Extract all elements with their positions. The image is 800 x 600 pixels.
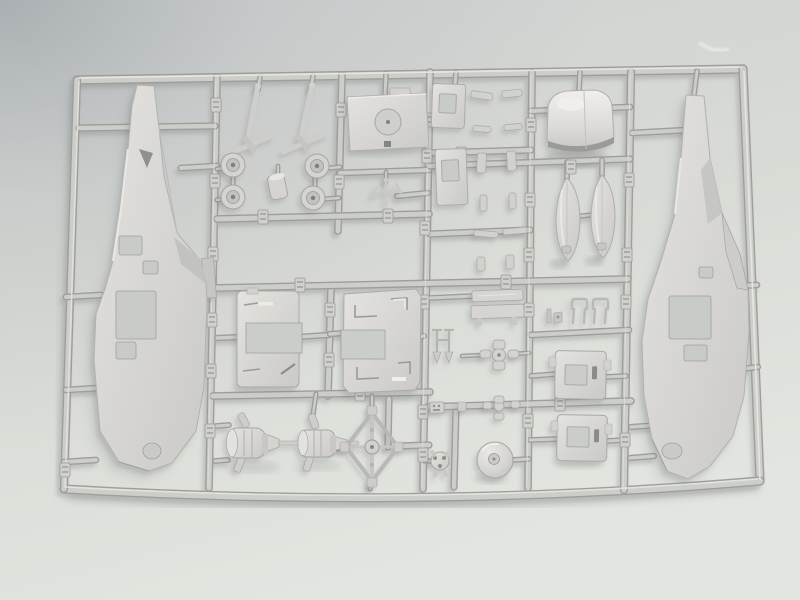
ball-joint-hole-2 xyxy=(442,456,446,460)
stub-top-canopy xyxy=(579,72,580,92)
part-number-tab xyxy=(334,175,344,189)
part-number-tab xyxy=(422,149,432,163)
part-number-tab xyxy=(566,160,576,174)
detail-bit-4 xyxy=(504,123,522,130)
gearbox-1-end-cap xyxy=(227,429,238,457)
fuselage-left-window-opening-1 xyxy=(119,236,142,255)
seat-rail-leg-2 xyxy=(512,317,517,325)
misc-box-part xyxy=(430,402,444,413)
strut-knob-1 xyxy=(255,83,261,89)
gearbox-1-collar xyxy=(262,434,268,454)
fuselage-right-window-opening-2 xyxy=(699,267,713,278)
stub-strips xyxy=(429,296,474,298)
fuselage-left-nose-opening xyxy=(143,443,161,459)
part-number-tab xyxy=(621,295,631,309)
part-number-tab xyxy=(526,118,536,132)
gearbox-shadow-1 xyxy=(224,461,280,473)
bulkhead-panel-2-tab-left xyxy=(551,421,558,431)
gearbox-shadow-2 xyxy=(294,461,342,471)
float-2-step xyxy=(597,243,606,250)
part-number-tab-plate xyxy=(418,405,428,419)
runner-vertical-b-low xyxy=(388,399,389,447)
stub-bulkhead-1b xyxy=(605,376,626,377)
part-number-tab xyxy=(210,174,220,188)
part-number-tab-plate xyxy=(258,210,268,224)
rotor-head-grip-top xyxy=(367,406,377,415)
part-number-tab-plate xyxy=(324,353,334,367)
part-number-tab xyxy=(525,193,535,207)
rotor-head-grip-right xyxy=(394,442,403,452)
bulkhead-panel-2-tab-right xyxy=(605,424,612,434)
detail-bit-12 xyxy=(506,255,514,269)
part-number-tab-plate xyxy=(205,424,215,438)
detail-bit-8 xyxy=(509,193,516,209)
bulkhead-panel-1-slot xyxy=(592,366,597,379)
part-number-tab xyxy=(206,364,216,378)
rotor-head-knob-1 xyxy=(370,428,374,432)
stub-top-plate xyxy=(385,74,386,95)
small-door-2-window xyxy=(441,160,459,182)
rotor-head-hub-hole xyxy=(370,445,374,449)
float-1-step xyxy=(562,246,571,253)
seat-rail-leg-1 xyxy=(477,318,482,326)
fuselage-right-nose-opening xyxy=(662,443,682,459)
part-number-tab xyxy=(524,303,534,317)
fuselage-left-window-opening-3 xyxy=(116,342,136,359)
fuselage-left-door-opening xyxy=(116,291,156,339)
cabin-door-2-white-mark xyxy=(392,377,406,381)
cross-mount-center-hole xyxy=(497,353,501,357)
strut-knob-2 xyxy=(309,82,315,88)
sprue-photo-svg xyxy=(0,0,800,600)
rotor-dome-center xyxy=(493,458,496,461)
stub-left-3 xyxy=(64,460,96,462)
fuselage-left-window-opening-2 xyxy=(143,261,158,274)
detail-bit-7 xyxy=(480,195,487,211)
part-number-tab xyxy=(524,248,534,262)
float-shadow-2 xyxy=(585,256,603,266)
part-number-tab-plate xyxy=(525,193,535,207)
part-number-tab-plate xyxy=(624,173,634,187)
cross-mount-2-arm-down xyxy=(494,413,504,420)
stub-float-link xyxy=(581,215,591,216)
part-number-tab xyxy=(624,173,634,187)
cross-mount-arm-right xyxy=(508,350,519,358)
sprue-photo xyxy=(0,0,800,600)
part-number-tab-plate xyxy=(523,414,533,428)
small-door-1-window xyxy=(439,94,457,114)
stub-gearbox-1b xyxy=(215,460,228,461)
seat-rail-strip-2 xyxy=(471,304,524,319)
cabin-door-2-window-cutout xyxy=(341,330,385,359)
stub-gearbox-1a xyxy=(216,425,229,426)
part-number-tab-plate xyxy=(210,174,220,188)
runner-vertical-e-low xyxy=(454,408,456,487)
part-number-tab-plate xyxy=(325,303,335,317)
part-number-tab-plate xyxy=(334,175,344,189)
part-number-tab-plate xyxy=(526,118,536,132)
tiny-block-hole xyxy=(557,316,560,319)
cross-mount-arm-up xyxy=(493,340,505,349)
cabin-door-1-white-mark xyxy=(258,302,273,306)
part-number-tab xyxy=(383,209,393,223)
wheel-1-axle-hole xyxy=(231,163,235,167)
cabin-roof-plate-pin-hole xyxy=(386,120,390,124)
part-number-tab-plate xyxy=(383,209,393,223)
cross-mount-arm-left xyxy=(480,350,491,358)
wheel-3-axle-hole xyxy=(231,195,235,199)
float-shadow-1 xyxy=(550,259,568,269)
cabin-roof-plate-slot xyxy=(384,141,391,147)
part-number-tab-plate xyxy=(524,303,534,317)
gearbox-2-end-cap xyxy=(298,431,308,456)
part-number-tab xyxy=(336,103,346,117)
cross-mount-arm-down xyxy=(493,361,505,370)
stub-dome xyxy=(512,459,529,460)
part-number-tab-plate xyxy=(336,103,346,117)
part-number-tab xyxy=(523,414,533,428)
part-number-tab xyxy=(622,248,632,262)
detail-bit-6 xyxy=(506,151,516,171)
stub-right-low-2 xyxy=(630,456,654,458)
gearbox-2-collar xyxy=(330,435,336,453)
cross-mount-2-arm-up xyxy=(494,396,504,403)
cabin-roof-plate-top-tab xyxy=(390,88,410,95)
ball-joint-hole-3 xyxy=(438,464,442,468)
part-number-tab-plate xyxy=(422,149,432,163)
bulkhead-panel-2-slot xyxy=(594,429,599,442)
stub-bulkhead-2a xyxy=(530,439,560,440)
misc-box-slot xyxy=(433,409,440,411)
part-number-tab xyxy=(211,98,221,112)
runner-h-tail-stub xyxy=(181,166,217,168)
bulkhead-panel-1-tab-right xyxy=(604,360,611,370)
part-number-tab xyxy=(325,303,335,317)
wheel-4-axle-hole xyxy=(311,196,315,200)
part-number-tab xyxy=(620,433,630,447)
stub-wheel-4 xyxy=(326,198,339,199)
part-number-tab-plate xyxy=(295,278,305,292)
part-number-tab xyxy=(324,353,334,367)
detail-bit-3 xyxy=(473,125,491,132)
fuselage-right-door-opening xyxy=(669,296,711,339)
part-number-tab-plate xyxy=(420,221,430,235)
part-number-tab xyxy=(60,463,70,477)
cross-mount-2-arm-left xyxy=(483,402,492,409)
fuselage-right-window-opening-1 xyxy=(684,345,707,361)
tiny-lever-part xyxy=(547,309,551,323)
misc-box-dot-1 xyxy=(433,405,435,407)
rotor-head-grip-bottom xyxy=(367,478,377,487)
misc-tiny-part xyxy=(458,402,466,411)
part-number-tab-plate xyxy=(207,313,217,327)
part-number-tab-plate xyxy=(566,160,576,174)
cabin-door-1-window-cutout xyxy=(246,323,302,353)
stub-wheel-2 xyxy=(330,167,340,168)
part-number-tab xyxy=(258,210,268,224)
part-number-tab-plate xyxy=(501,275,511,289)
part-number-tab xyxy=(205,424,215,438)
cross-mount-2-arm-right xyxy=(511,401,520,408)
part-number-tab xyxy=(295,278,305,292)
part-number-tab-plate xyxy=(622,248,632,262)
part-number-tab xyxy=(420,221,430,235)
detail-bit-11 xyxy=(477,257,485,271)
wheel-2-axle-hole xyxy=(315,164,319,168)
part-number-tab-plate xyxy=(211,98,221,112)
part-number-tab-plate xyxy=(621,295,631,309)
part-number-tab xyxy=(207,313,217,327)
part-number-tab-plate xyxy=(418,448,428,462)
part-number-tab-plate xyxy=(60,463,70,477)
part-number-tab-plate xyxy=(206,364,216,378)
anchor-part-ring xyxy=(384,178,389,183)
part-number-tab xyxy=(501,275,511,289)
cabin-door-1-hinge-tab xyxy=(247,288,258,294)
part-number-tab xyxy=(418,405,428,419)
part-number-tab xyxy=(418,448,428,462)
bulkhead-panel-1-hole xyxy=(565,365,587,385)
misc-box-dot-2 xyxy=(438,405,440,407)
bulkhead-panel-1-tab-left xyxy=(549,357,556,367)
part-number-tab-plate xyxy=(620,433,630,447)
rotor-head-knob-2 xyxy=(370,463,374,467)
part-number-tab-plate xyxy=(524,248,534,262)
bulkhead-panel-2-hole xyxy=(567,427,589,447)
stub-bulkhead-1a xyxy=(531,374,557,376)
rotor-head-grip-left xyxy=(340,442,349,452)
detail-bit-5 xyxy=(476,153,486,173)
stub-top-door xyxy=(455,73,456,85)
canopy-cowl-highlight xyxy=(557,97,585,111)
stub-left-2 xyxy=(66,388,99,390)
